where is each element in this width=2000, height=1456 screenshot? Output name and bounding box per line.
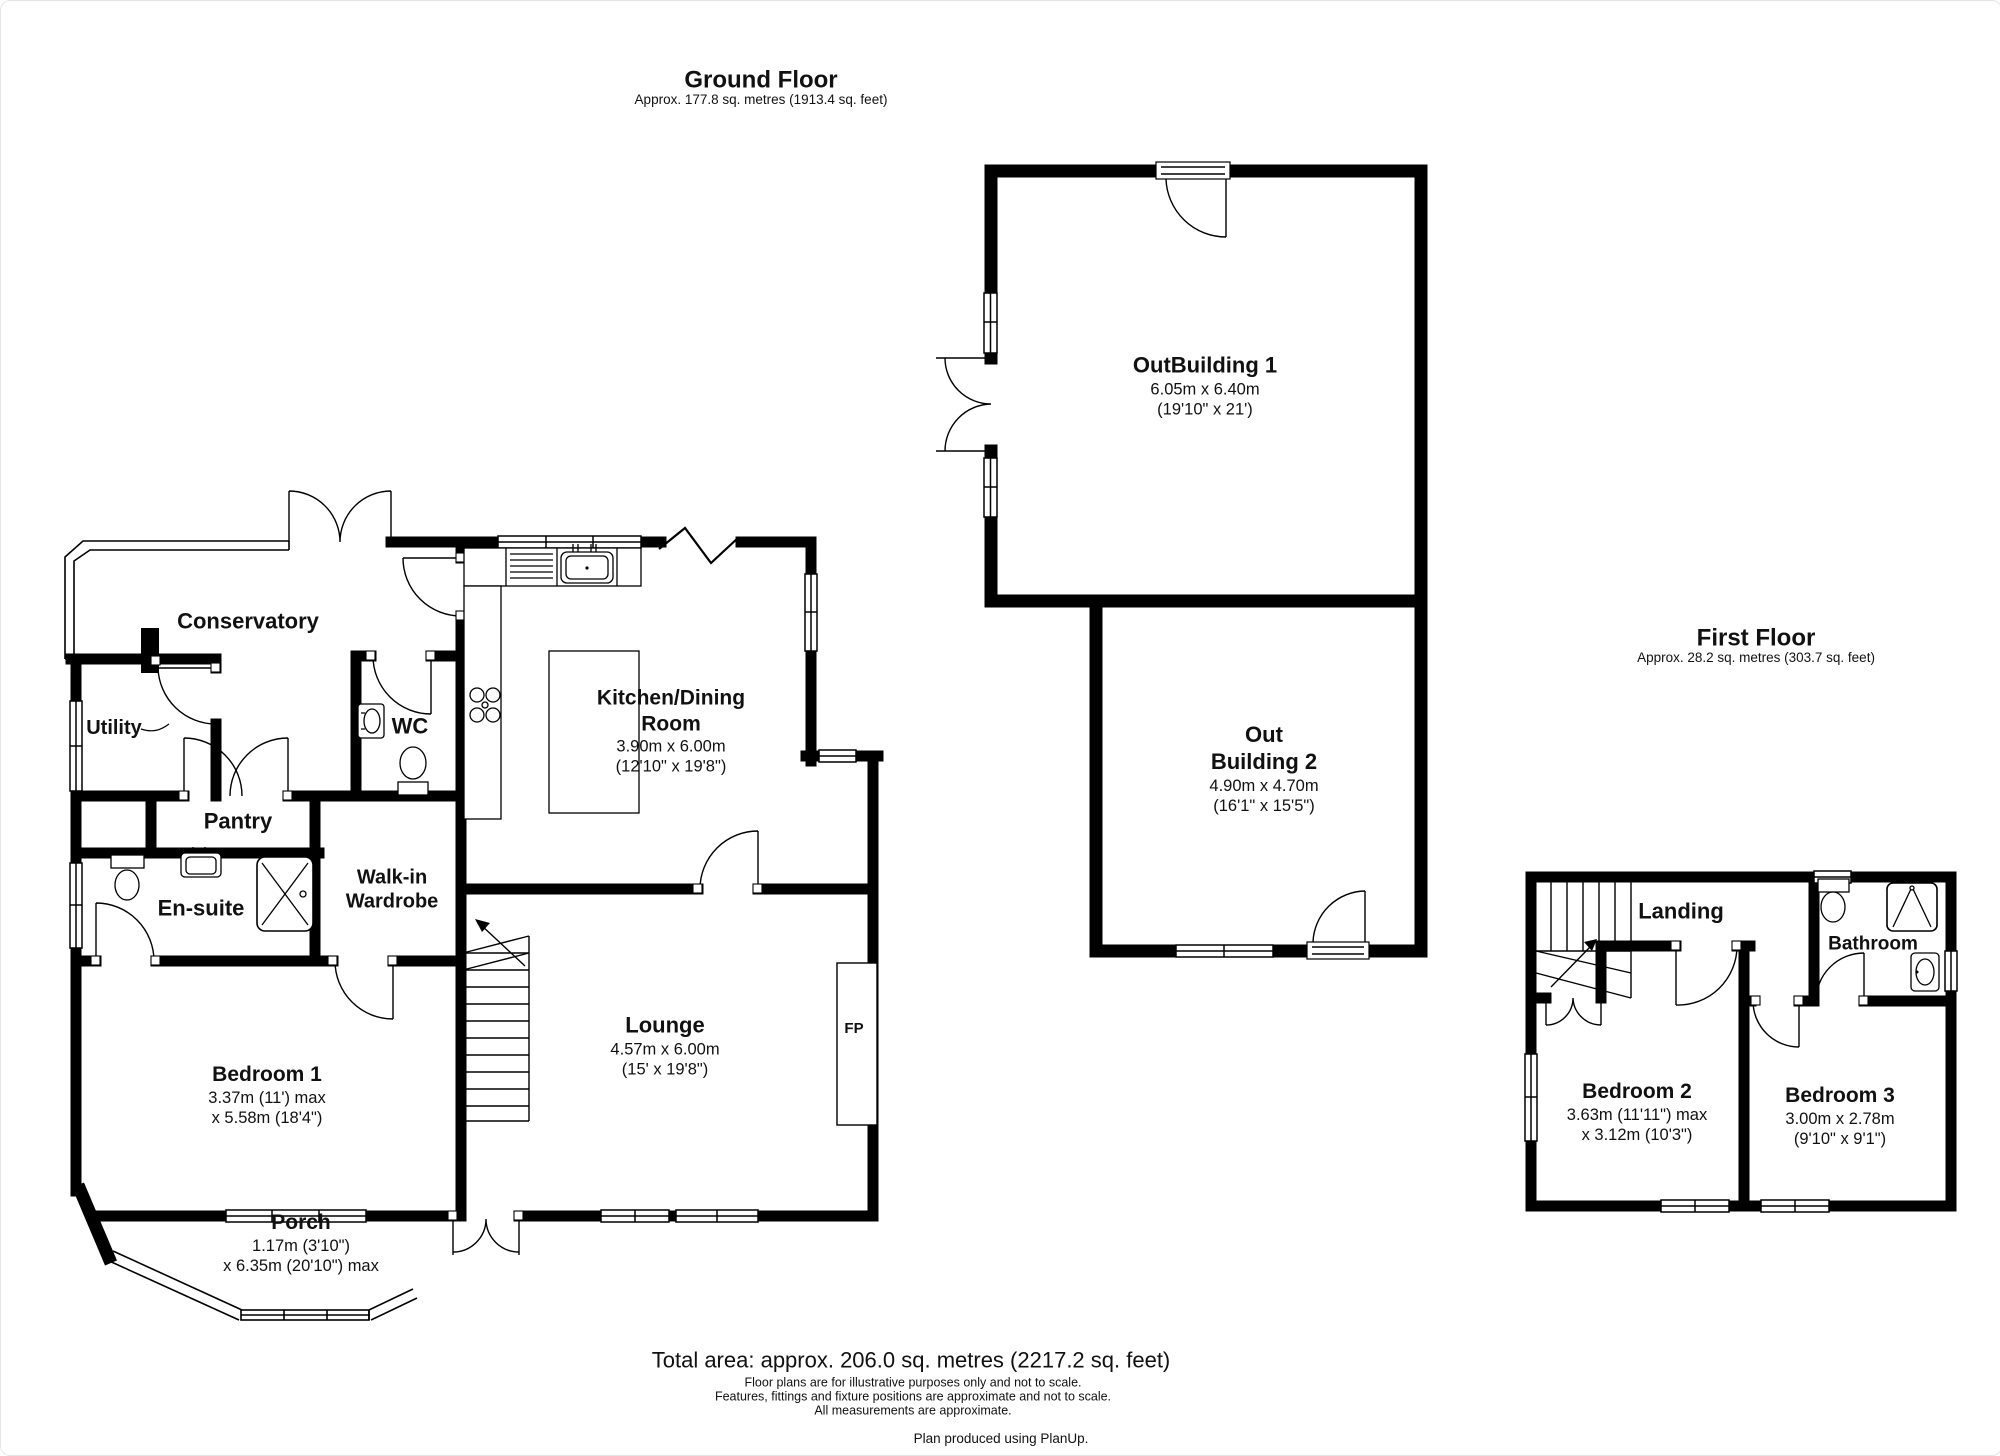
room-label-bedroom2: Bedroom 2 3.63m (11'11") max x 3.12m (10… (1567, 1079, 1707, 1145)
bathroom-door (1816, 953, 1864, 1001)
ground-floor-title: Ground Floor (684, 65, 837, 94)
stairs-arrowhead (475, 919, 490, 932)
room-dim-imperial: x 3.12m (10'3") (1567, 1125, 1707, 1145)
fireplace (837, 963, 877, 1125)
outbuildings-plan (936, 162, 1421, 959)
room-label-pantry: Pantry (204, 809, 272, 836)
bedroom3-door (1753, 1001, 1799, 1047)
ground-floor-subtitle: Approx. 177.8 sq. metres (1913.4 sq. fee… (635, 92, 888, 108)
pantry-door-right (230, 738, 288, 796)
window (1525, 1054, 1537, 1141)
room-name: Bedroom 3 (1785, 1083, 1895, 1109)
toilet-tank (1818, 879, 1849, 892)
room-dim-metric: 4.57m x 6.00m (610, 1039, 719, 1059)
opening-zigzag (659, 528, 739, 563)
bedroom2-door (1676, 946, 1737, 1005)
room-dim-metric: 3.63m (11'11") max (1567, 1105, 1707, 1125)
room-dim-imperial: (15' x 19'8") (610, 1059, 719, 1079)
room-dim-metric: 3.37m (11') max (208, 1088, 325, 1108)
room-dim-imperial: (19'10" x 21') (1133, 399, 1277, 419)
window (1661, 1200, 1729, 1212)
outbuilding2-door (1313, 891, 1365, 942)
total-area-text: Total area: approx. 206.0 sq. metres (22… (652, 1348, 1171, 1375)
room-dim-imperial: x 5.58m (18'4") (208, 1108, 325, 1128)
staircase-ground (463, 919, 529, 1121)
label-leader-line (141, 724, 169, 731)
window (676, 1210, 758, 1222)
room-label-kitchen-dining: Kitchen/Dining Room 3.90m x 6.00m (12'10… (579, 685, 764, 776)
disclaimer-line: All measurements are approximate. (814, 1403, 1011, 1418)
ensuite-door (96, 903, 154, 961)
bedroom2-wardrobe-doors (1546, 998, 1601, 1025)
first-floor-title: First Floor (1697, 623, 1816, 652)
outbuilding1-door (1166, 179, 1226, 237)
room-name: Out Building 2 (1205, 722, 1323, 776)
first-floor-subtitle: Approx. 28.2 sq. metres (303.7 sq. feet) (1637, 650, 1875, 666)
ensuite-toilet-icon (115, 870, 139, 900)
first-floor-plan (1525, 871, 1957, 1212)
window (984, 293, 997, 353)
room-dim-metric: 3.00m x 2.78m (1785, 1109, 1895, 1129)
room-name: Kitchen/Dining Room (579, 685, 764, 736)
room-dim-metric: 4.90m x 4.70m (1205, 776, 1323, 796)
disclaimer-line: Features, fittings and fixture positions… (715, 1389, 1111, 1404)
outbuilding-walls (991, 171, 1421, 951)
room-name: Bedroom 2 (1567, 1079, 1707, 1105)
kitchen-fixtures (464, 544, 641, 819)
conservatory-glazing (65, 541, 289, 659)
door-threshold (1307, 942, 1369, 959)
stairs-arrowhead (1584, 939, 1597, 951)
room-name: OutBuilding 1 (1133, 352, 1277, 379)
room-dim-metric: 6.05m x 6.40m (1133, 379, 1277, 399)
window (1176, 945, 1273, 957)
room-name: Bedroom 1 (208, 1062, 325, 1088)
room-label-outbuilding1: OutBuilding 1 6.05m x 6.40m (19'10" x 21… (1133, 352, 1277, 419)
wardrobe-door (335, 961, 393, 1019)
door-threshold (1156, 162, 1230, 179)
doors (936, 162, 1369, 959)
floorplan-page: Ground Floor Approx. 177.8 sq. metres (1… (0, 0, 2000, 1456)
toilet-icon (1821, 892, 1845, 922)
window (601, 1210, 669, 1222)
conservatory-kitchen-door (403, 558, 461, 616)
disclaimer-line: Floor plans are for illustrative purpose… (745, 1375, 1082, 1390)
doors (1546, 941, 1868, 1047)
wall-pier (141, 628, 159, 673)
outbuilding1-french-doors (936, 358, 991, 451)
window (70, 863, 82, 948)
room-label-outbuilding2: Out Building 2 4.90m x 4.70m (16'1" x 15… (1205, 722, 1323, 816)
conservatory-french-doors (289, 491, 391, 542)
room-name: Lounge (610, 1012, 719, 1039)
room-dim-imperial: (9'10" x 9'1") (1785, 1129, 1895, 1149)
room-label-bedroom3: Bedroom 3 3.00m x 2.78m (9'10" x 9'1") (1785, 1083, 1895, 1149)
room-dim-metric: 3.90m x 6.00m (579, 736, 764, 756)
room-label-lounge: Lounge 4.57m x 6.00m (15' x 19'8") (610, 1012, 719, 1079)
room-label-wc: WC (392, 714, 429, 741)
porch-corner-wall (78, 1185, 111, 1263)
room-label-landing: Landing (1638, 899, 1724, 926)
room-dim-imperial: (12'10" x 19'8") (579, 757, 764, 777)
room-label-utility: Utility (86, 716, 142, 740)
room-label-conservatory: Conservatory (177, 609, 319, 636)
window (70, 701, 82, 791)
room-label-ensuite: En-suite (158, 896, 245, 923)
window (805, 574, 817, 651)
porch-french-doors (453, 1219, 519, 1255)
credit-text: Plan produced using PlanUp. (914, 1431, 1089, 1447)
window (1945, 951, 1957, 991)
room-dim-metric: 1.17m (3'10") (223, 1236, 379, 1256)
window (1761, 1200, 1829, 1212)
lounge-kitchen-door (700, 831, 758, 889)
wc-toilet-icon (400, 747, 426, 779)
room-name: Porch (223, 1210, 379, 1236)
room-label-porch: Porch 1.17m (3'10") x 6.35m (20'10") max (223, 1210, 379, 1276)
room-label-bathroom: Bathroom (1828, 932, 1918, 955)
room-dim-imperial: (16'1" x 15'5") (1205, 796, 1323, 816)
stairs-arrow (1551, 946, 1591, 987)
room-dim-imperial: x 6.35m (20'10") max (223, 1256, 379, 1276)
window (819, 750, 856, 762)
window (498, 536, 641, 548)
room-label-walk-in-wardrobe: Walk-in Wardrobe (322, 866, 462, 915)
staircase-first (1536, 879, 1631, 998)
fireplace-label: FP (844, 1020, 863, 1038)
ensuite-toilet-tank (111, 855, 144, 868)
window (984, 458, 997, 517)
room-label-bedroom1: Bedroom 1 3.37m (11') max x 5.58m (18'4"… (208, 1062, 325, 1128)
utility-door (158, 668, 216, 724)
